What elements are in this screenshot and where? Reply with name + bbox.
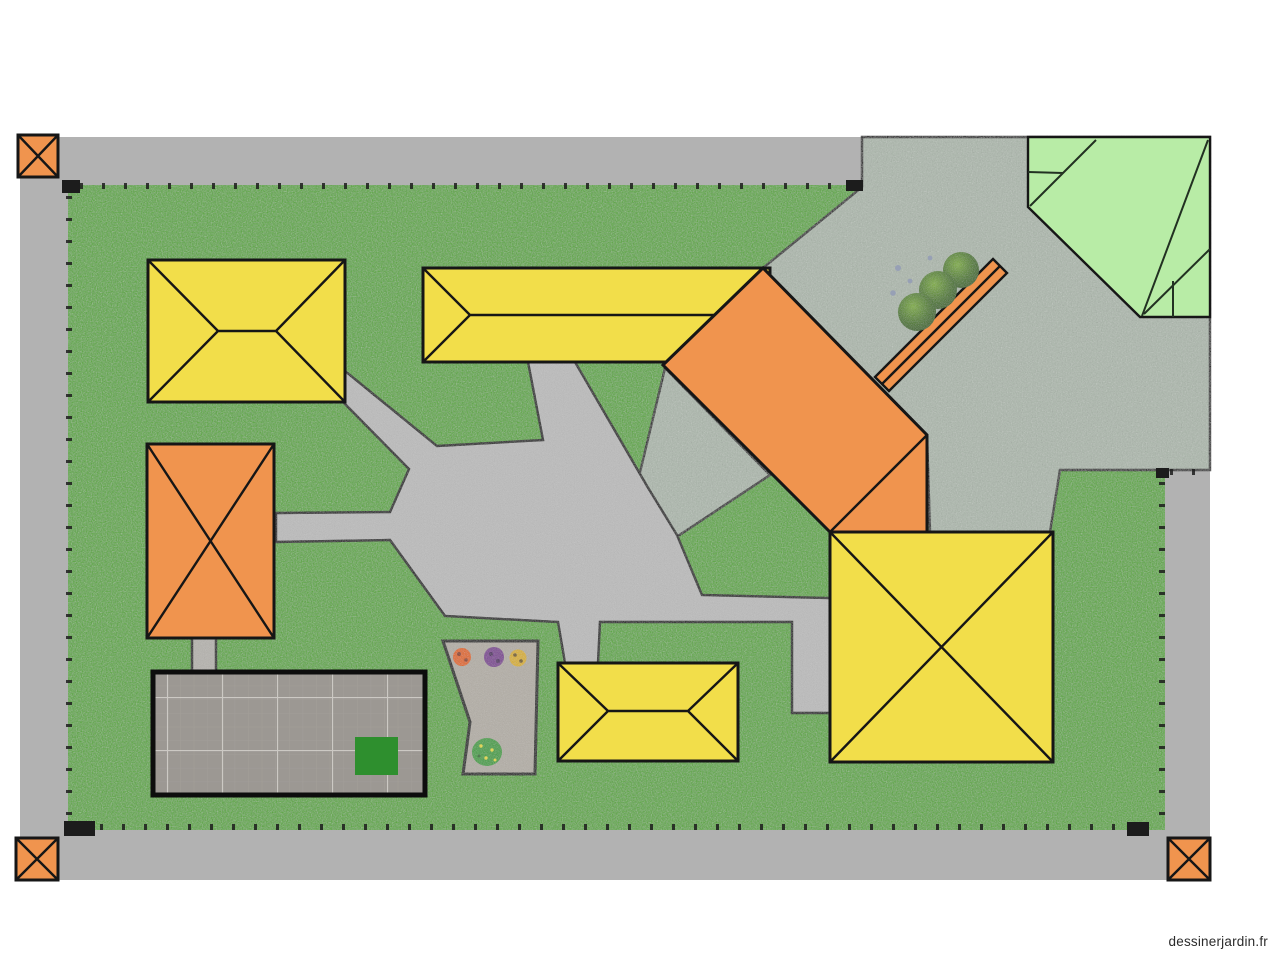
flower-orange[interactable] [453, 648, 471, 666]
building-yellow-topleft[interactable] [148, 260, 345, 402]
fence-post [64, 821, 95, 836]
fence-post [1127, 822, 1149, 836]
bush-3 [898, 293, 936, 331]
watermark: dessinerjardin.fr [1169, 934, 1268, 949]
paved-terrace[interactable] [153, 672, 425, 795]
corner-marker-topleft[interactable] [18, 135, 58, 177]
flower-purple[interactable] [484, 647, 504, 667]
fence-post [1156, 468, 1169, 478]
building-yellow-bottomright[interactable] [830, 532, 1053, 762]
fence-post [62, 180, 80, 193]
plant-cluster[interactable] [472, 738, 502, 766]
corner-marker-bottomleft[interactable] [16, 838, 58, 880]
building-orange-left[interactable] [147, 444, 274, 638]
building-yellow-bottomcenter[interactable] [558, 663, 738, 761]
garden-plan-canvas: dessinerjardin.fr [0, 0, 1280, 960]
terrace-mat[interactable] [355, 737, 398, 775]
corner-marker-bottomright[interactable] [1168, 838, 1210, 880]
flower-yellow[interactable] [510, 650, 527, 667]
fence-post [846, 180, 863, 191]
gravel-connector[interactable] [192, 634, 216, 674]
